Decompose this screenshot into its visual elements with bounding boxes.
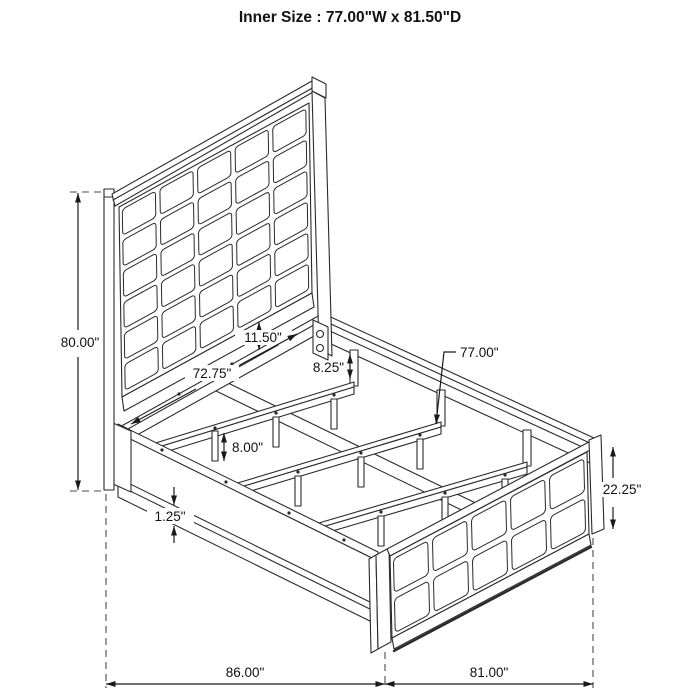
slat-bracket — [350, 350, 358, 386]
footboard-left-stile — [376, 548, 391, 649]
dim-footboard-height: 22.25" — [603, 482, 642, 497]
mounting-bracket — [313, 320, 328, 360]
dim-slat-width: 77.00" — [460, 345, 499, 360]
rail-end-post — [113, 423, 131, 492]
dim-overall-length: 86.00" — [226, 665, 265, 680]
dim-rail-lip: 1.25" — [154, 509, 185, 524]
far-side-rail — [318, 313, 594, 463]
dim-overall-width: 81.00" — [470, 665, 509, 680]
headboard-right-post — [312, 91, 332, 356]
dim-leg-height: 8.00" — [232, 440, 263, 455]
bed-dimension-diagram: Inner Size : 77.00"W x 81.50"D — [0, 0, 700, 700]
slat-bracket — [523, 430, 531, 466]
bolt-hole — [317, 345, 324, 352]
diagram-title: Inner Size : 77.00"W x 81.50"D — [239, 9, 461, 26]
slat-2 — [231, 422, 441, 497]
dim-rail-to-slat-drop: 8.25" — [313, 360, 344, 375]
dim-rail-inner-length: 72.75" — [193, 366, 232, 381]
dim-headboard-height: 80.00" — [61, 335, 100, 350]
bolt-hole — [317, 331, 324, 338]
dim-panel-to-rail-gap: 11.50" — [244, 330, 282, 345]
headboard-left-post — [104, 189, 114, 490]
footboard — [369, 435, 604, 653]
